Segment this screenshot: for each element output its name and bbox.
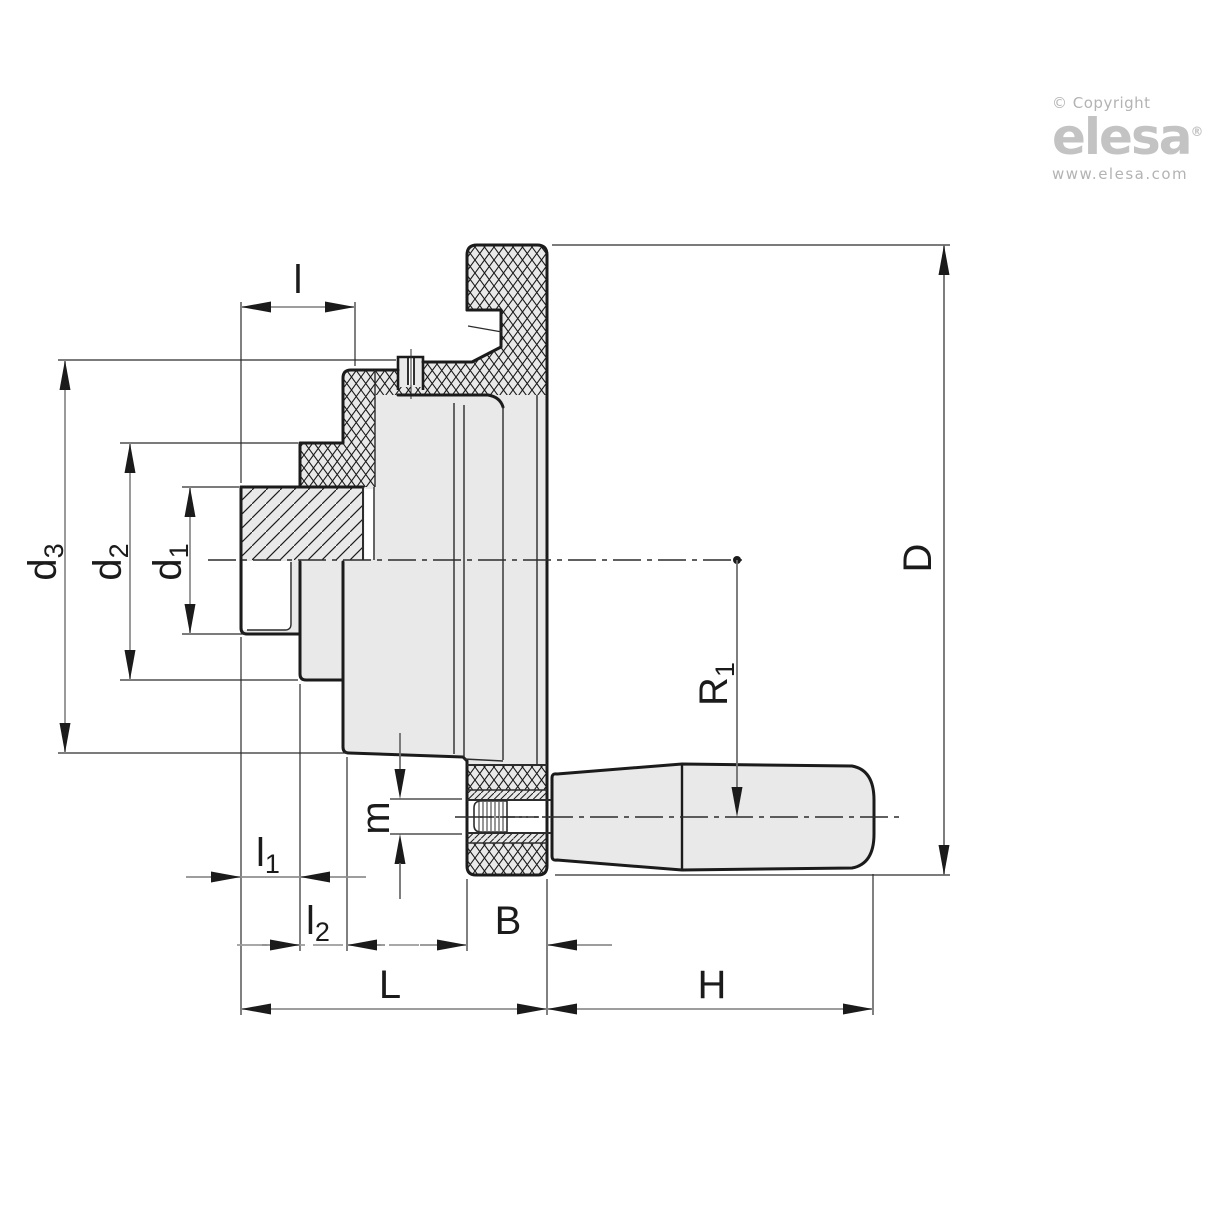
dim-label-d3: d3 <box>21 543 69 580</box>
dim-label-l1: l1 <box>256 831 280 879</box>
dimension-d2: d2 <box>86 443 136 680</box>
dim-label-d1: d1 <box>146 543 194 580</box>
dim-label-m: m <box>354 801 398 834</box>
dim-label-D: D <box>896 544 940 573</box>
dim-label-l2: l2 <box>306 899 330 947</box>
dimension-B: B <box>420 899 612 951</box>
dimension-l: l <box>241 258 355 313</box>
bushing-hatch <box>241 487 363 560</box>
elesa-logo: elesa® <box>1052 112 1212 162</box>
registered-trademark: ® <box>1190 125 1203 140</box>
dim-label-R1: R1 <box>692 662 740 706</box>
technical-drawing: l d3 d2 d1 D R1 m <box>0 0 1214 1214</box>
brand-block: © Copyright elesa® www.elesa.com <box>1052 94 1212 183</box>
dim-label-H: H <box>698 963 727 1007</box>
dimension-m: m <box>354 733 406 899</box>
dimension-d1: d1 <box>146 487 196 634</box>
dim-label-B: B <box>495 899 522 943</box>
bore-opening <box>243 561 290 630</box>
dimension-d3: d3 <box>21 360 71 753</box>
dim-label-d2: d2 <box>86 543 134 580</box>
dimension-H: H <box>547 963 873 1015</box>
dimension-D: D <box>896 245 950 875</box>
page: l d3 d2 d1 D R1 m <box>0 0 1214 1214</box>
website-url: www.elesa.com <box>1052 165 1212 183</box>
dimension-l2: l2 <box>237 899 420 951</box>
dim-label-L: L <box>379 963 401 1007</box>
dimension-l1: l1 <box>186 831 366 883</box>
dimension-L: L <box>241 963 547 1015</box>
dim-label-l: l <box>294 258 303 302</box>
